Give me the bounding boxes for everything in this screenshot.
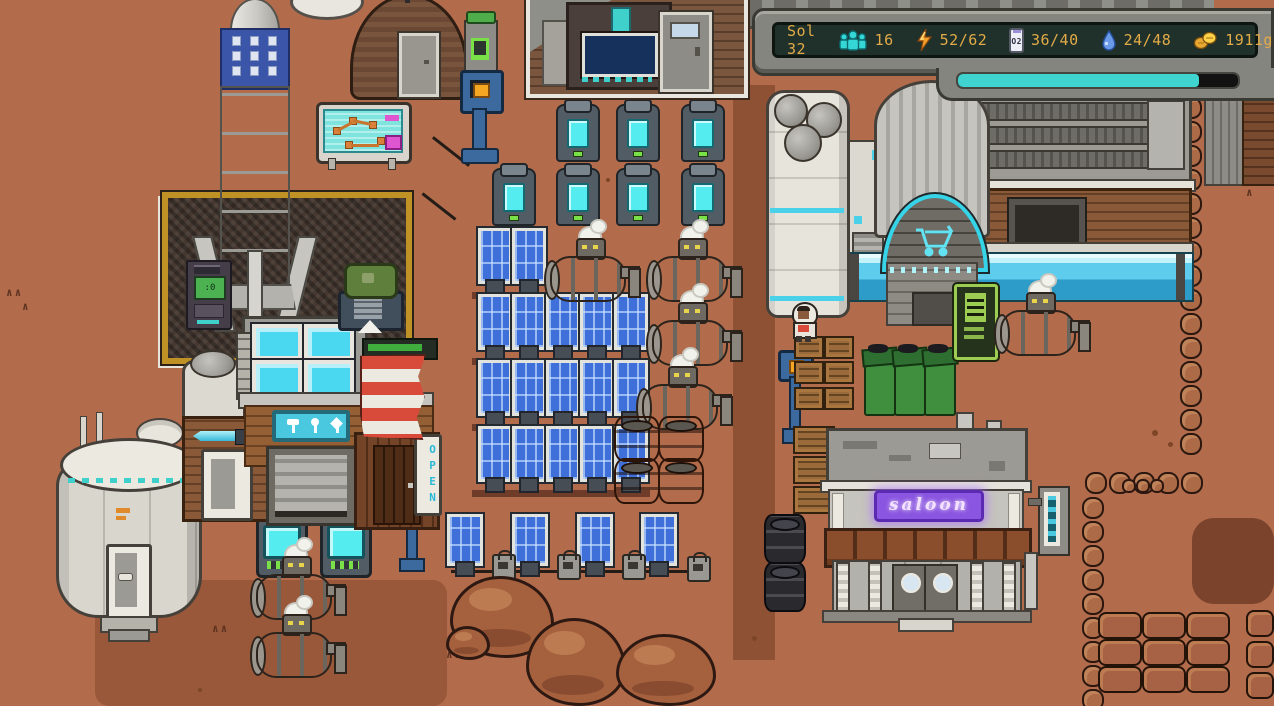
- console-screen: :0: [194, 276, 226, 300]
- pin-icon: [308, 418, 322, 434]
- junction-box[interactable]: [687, 556, 711, 582]
- map-icon-pink: [385, 135, 402, 150]
- saloon-neon-sign: saloon: [874, 490, 984, 522]
- dark-soil-patch: [1192, 518, 1274, 604]
- rock: [616, 634, 716, 706]
- map-marker-arrow: [358, 320, 382, 333]
- oxygen-icon: O2: [1009, 28, 1024, 53]
- cabin[interactable]: [526, 0, 748, 98]
- rock-cluster: [1122, 478, 1172, 498]
- oxygen-value: 36/40: [1031, 31, 1079, 49]
- dumpster[interactable]: [924, 356, 956, 416]
- cyan-trim: [770, 296, 844, 301]
- solar-panel[interactable]: [641, 514, 677, 566]
- cyan-trim: [68, 478, 184, 483]
- cyan-trim: [770, 208, 844, 213]
- solar-panel[interactable]: [478, 360, 512, 416]
- scaffold: [236, 332, 252, 400]
- ground-mark: ∧: [1246, 186, 1255, 199]
- solar-panel[interactable]: [546, 426, 580, 482]
- rooftop-barrel: [784, 124, 822, 162]
- solar-panel[interactable]: [580, 426, 614, 482]
- window: [252, 360, 302, 396]
- gas-tank[interactable]: [546, 238, 638, 304]
- tool-shop-sign: [272, 410, 350, 442]
- water-icon: [1101, 30, 1117, 51]
- oxygen-machine[interactable]: [616, 104, 660, 162]
- status-board-fill: [368, 344, 422, 351]
- rock-wall: [1098, 612, 1248, 693]
- solar-panel[interactable]: [478, 228, 512, 284]
- player-character[interactable]: [792, 302, 816, 342]
- oxygen-machine[interactable]: [492, 168, 536, 226]
- cabin-door[interactable]: [660, 12, 712, 92]
- junction-box[interactable]: [622, 554, 646, 580]
- solar-panel[interactable]: [512, 360, 546, 416]
- open-sign: OPEN: [414, 434, 442, 516]
- window: [304, 360, 354, 396]
- ground-mark: ∧: [22, 300, 31, 313]
- ground-mark: ∧∧: [212, 622, 229, 635]
- map-billboard[interactable]: [316, 102, 412, 170]
- solar-panel[interactable]: [478, 294, 512, 350]
- map-label-pink: [385, 115, 399, 121]
- rock: [446, 626, 490, 660]
- lamp-light: [473, 83, 490, 98]
- solar-panel[interactable]: [577, 514, 613, 566]
- solar-panel[interactable]: [512, 294, 546, 350]
- credits-value: 1911g: [1225, 31, 1273, 49]
- oxygen-machine[interactable]: [556, 168, 600, 226]
- power-value: 52/62: [940, 31, 988, 49]
- shopping-cart-icon: [912, 222, 956, 258]
- gas-tank[interactable]: [252, 614, 344, 680]
- cabin-console[interactable]: [566, 2, 672, 90]
- map-screen: [323, 109, 403, 153]
- sensor-tower[interactable]: [452, 0, 500, 164]
- vertical-neon-sign: [1038, 486, 1070, 556]
- gas-tank[interactable]: [996, 292, 1088, 358]
- colonists-icon: [838, 29, 868, 51]
- saloon-roof: [826, 428, 1028, 488]
- rooftop-barrel: [190, 350, 236, 378]
- rock: [526, 618, 626, 706]
- saloon-doors[interactable]: [892, 564, 956, 612]
- junction-box[interactable]: [557, 554, 581, 580]
- habitat-dome[interactable]: [52, 412, 202, 638]
- oxygen-machine[interactable]: [556, 104, 600, 162]
- dome-hut[interactable]: [350, 0, 468, 100]
- window: [252, 324, 302, 360]
- solar-panel[interactable]: [478, 426, 512, 482]
- dome-hut-door[interactable]: [399, 33, 439, 97]
- dumpster[interactable]: [894, 356, 926, 416]
- solar-panel[interactable]: [447, 514, 483, 566]
- colonists-value: 16: [875, 31, 894, 49]
- console-monitor: [582, 33, 658, 77]
- solar-panel[interactable]: [580, 360, 614, 416]
- rock-wall: [1246, 610, 1274, 703]
- workshop[interactable]: OPEN: [236, 316, 438, 524]
- garage-door[interactable]: [266, 446, 362, 526]
- drain-pipe: [1024, 552, 1038, 610]
- hud: Sol 32 16 52/62 O2 36/40 24/48 1911g: [750, 6, 1274, 100]
- vending-console[interactable]: :0: [186, 260, 232, 330]
- solar-panel[interactable]: [512, 426, 546, 482]
- store-doorway: [912, 292, 956, 326]
- oxygen-machine[interactable]: [616, 168, 660, 226]
- porthole-window: [933, 573, 953, 593]
- power-icon: [916, 29, 933, 51]
- rocket-window-band: [220, 28, 290, 90]
- porthole-window: [901, 573, 921, 593]
- solar-panel[interactable]: [546, 360, 580, 416]
- striped-flag: [360, 354, 426, 440]
- battery-icon: [965, 293, 986, 322]
- solar-panel[interactable]: [512, 514, 548, 566]
- oxygen-machine[interactable]: [681, 168, 725, 226]
- axe-icon: [330, 418, 344, 434]
- day-progress-bar: [956, 72, 1240, 89]
- crate-stack[interactable]: [794, 336, 862, 412]
- hammer-icon: [286, 418, 300, 434]
- charge-station-sign[interactable]: [954, 284, 998, 360]
- sensor-green-cap: [466, 11, 496, 24]
- solar-panel[interactable]: [512, 228, 546, 284]
- ground-mark: ∧∧: [6, 286, 23, 299]
- string-lights: [890, 267, 972, 273]
- barrel-stack[interactable]: [612, 416, 704, 506]
- habitat-door[interactable]: [106, 544, 152, 622]
- game-viewport: ∧∧ ∧ ∧∧ ∧∧ ∧ ∧ ∧ :0: [0, 0, 1274, 706]
- hud-panel: Sol 32 16 52/62 O2 36/40 24/48 1911g: [772, 22, 1258, 58]
- day-progress-fill: [958, 74, 1199, 87]
- sensor-display: [471, 38, 489, 60]
- hab-label: [116, 508, 130, 513]
- dumpster[interactable]: [864, 356, 896, 416]
- habitat-roof: [60, 438, 198, 492]
- saloon[interactable]: saloon: [820, 410, 1034, 632]
- rocket-windows: [222, 30, 288, 76]
- oxygen-machine[interactable]: [681, 104, 725, 162]
- credits-icon: [1193, 30, 1218, 50]
- octagon-tower[interactable]: [766, 90, 850, 318]
- saloon-step: [898, 618, 954, 632]
- water-value: 24/48: [1124, 31, 1172, 49]
- power-cable: [422, 192, 457, 220]
- sol-counter: Sol 32: [787, 22, 816, 58]
- barrel-stack[interactable]: [764, 514, 804, 610]
